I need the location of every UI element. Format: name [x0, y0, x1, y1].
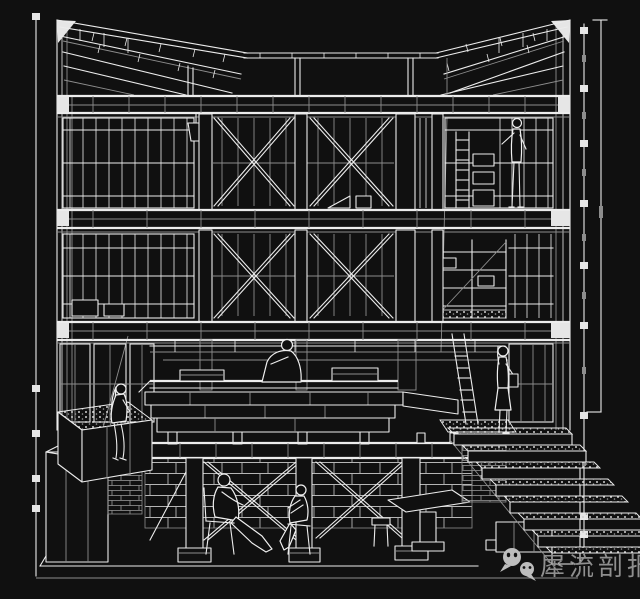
column [295, 230, 307, 322]
column [199, 230, 212, 322]
column [432, 230, 443, 322]
section-drawing: 犀流剖报 [0, 0, 640, 599]
column [396, 114, 415, 210]
column [295, 114, 307, 210]
column [396, 230, 415, 322]
column [199, 114, 212, 210]
watermark-text: 犀流剖报 [540, 553, 640, 581]
column [432, 114, 443, 210]
planter [58, 402, 152, 482]
screenshot-canvas: 犀流剖报 [0, 0, 640, 599]
